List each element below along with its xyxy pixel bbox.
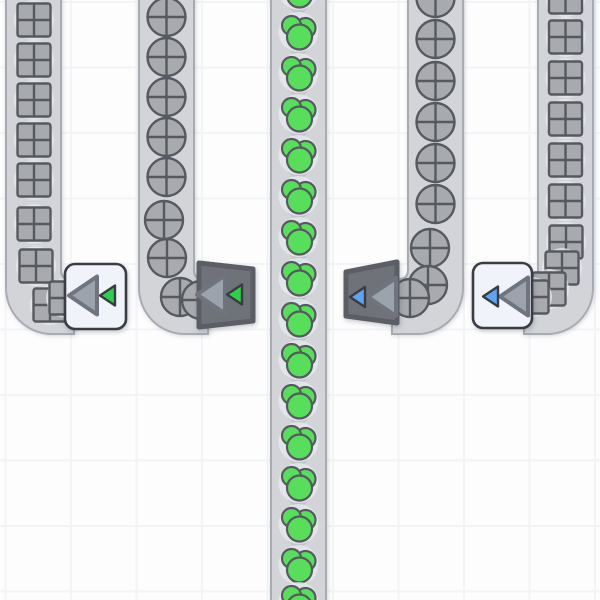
- shape-item-square: [546, 181, 586, 221]
- paint-item-green: [279, 340, 319, 380]
- shape-item-square: [546, 58, 586, 98]
- paint-item-green: [279, 381, 319, 421]
- paint-item-green: [279, 12, 319, 52]
- paint-item-green: [279, 463, 319, 503]
- paint-item-green: [279, 53, 319, 93]
- shape-item-circle: [147, 37, 187, 77]
- factory-scene: [0, 0, 600, 600]
- building-tunnel-tier1-exit-left[interactable]: [65, 264, 126, 329]
- shape-item-circle: [147, 77, 187, 117]
- building-tunnel-tier2-exit-right[interactable]: [473, 263, 532, 328]
- shape-item-circle: [410, 228, 450, 268]
- building-tunnel-tier1-entrance-left[interactable]: [197, 263, 253, 327]
- shape-item-circle: [147, 117, 187, 157]
- shape-item-square: [14, 204, 54, 244]
- shape-item-circle: [147, 0, 187, 37]
- paint-item-green: [279, 176, 319, 216]
- shape-item-circle: [147, 238, 187, 278]
- paint-item-green: [279, 135, 319, 175]
- building-tunnel-tier2-entrance-right[interactable]: [346, 262, 397, 323]
- shape-item-circle: [147, 157, 187, 197]
- shape-item-square: [14, 160, 54, 200]
- paint-item-green: [279, 504, 319, 544]
- paint-item-green: [279, 217, 319, 257]
- shape-item-square: [16, 246, 56, 286]
- paint-item-green: [279, 545, 319, 585]
- game-viewport: [0, 0, 600, 600]
- paint-item-green: [279, 258, 319, 298]
- shape-item-circle: [416, 102, 456, 142]
- shape-item-square: [14, 120, 54, 160]
- paint-item-green: [279, 94, 319, 134]
- shape-item-square: [546, 17, 586, 57]
- shape-item-square: [14, 0, 54, 40]
- shape-item-circle: [416, 143, 456, 183]
- shape-item-circle: [144, 200, 184, 240]
- paint-item-green: [279, 299, 319, 339]
- shape-item-square: [14, 80, 54, 120]
- shape-item-circle: [416, 184, 456, 224]
- shape-item-circle: [416, 61, 456, 101]
- shape-item-circle: [416, 19, 456, 59]
- shape-item-square: [546, 99, 586, 139]
- shape-item-square: [546, 0, 586, 17]
- paint-item-green: [279, 422, 319, 462]
- shape-item-square: [14, 40, 54, 80]
- shape-item-square: [546, 140, 586, 180]
